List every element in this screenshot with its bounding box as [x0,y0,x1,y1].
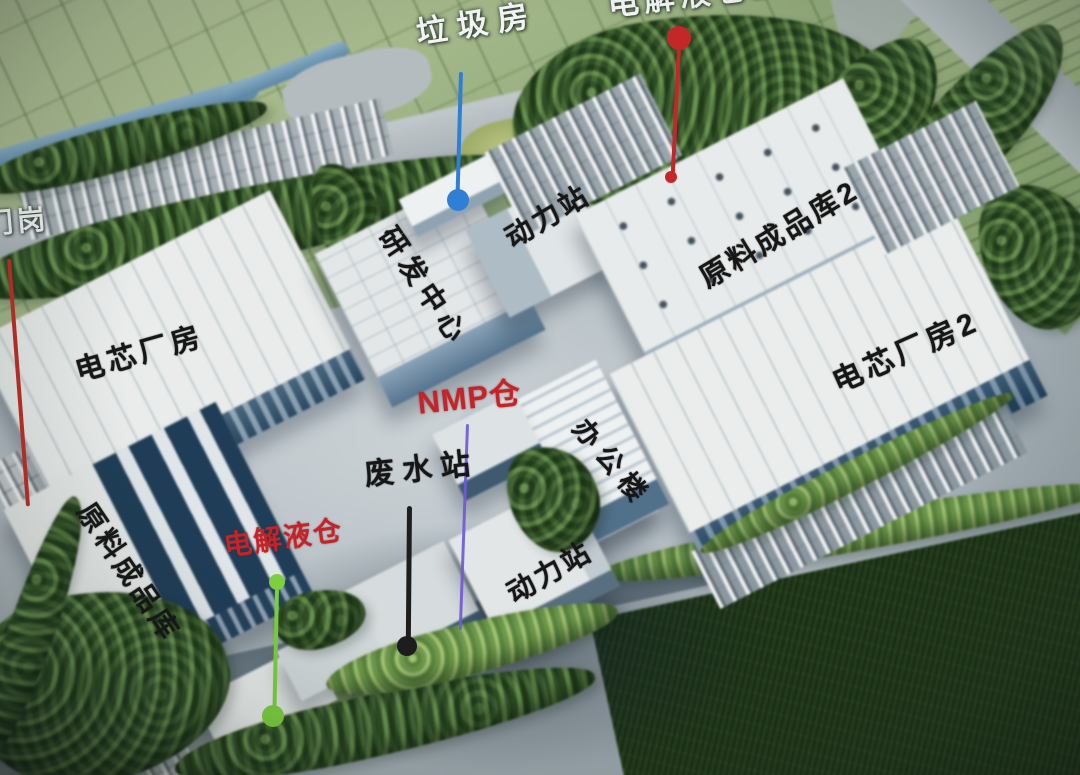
label-gate: 门岗 [0,204,50,239]
electrolyte-wh1-dot-top [269,574,285,590]
electrolyte-wh2-dot [665,171,677,183]
wastewater-dot [397,636,417,656]
site-plan-photo: 垃圾房 电解液仓2 动力站 研发中心 原料成品库2 电芯厂房 电芯厂房2 NMP… [0,0,1080,775]
electrolyte-wh1-dot-bottom [262,705,284,727]
aerial-scene [0,0,1080,775]
garbage-room-pin [447,189,469,211]
